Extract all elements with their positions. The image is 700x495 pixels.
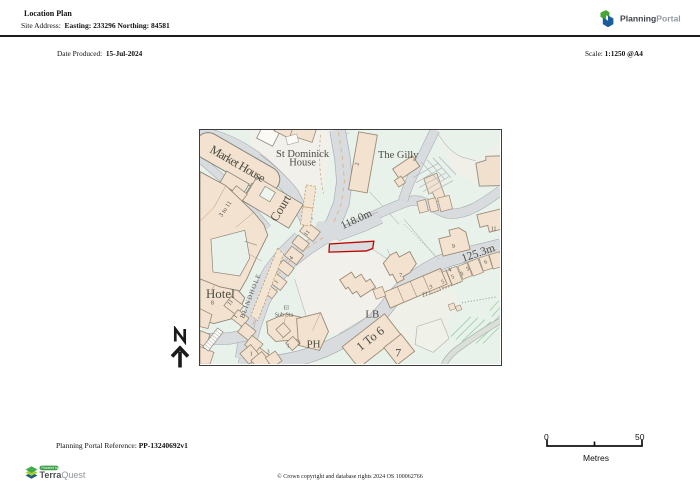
svg-text:1: 1 bbox=[249, 351, 252, 357]
svg-text:PlanningPortal: PlanningPortal bbox=[620, 14, 681, 24]
svg-text:3: 3 bbox=[297, 340, 300, 346]
svg-text:LB: LB bbox=[365, 308, 379, 320]
svg-text:1: 1 bbox=[286, 343, 289, 349]
svg-text:PH: PH bbox=[306, 338, 320, 350]
svg-text:Hotel: Hotel bbox=[206, 285, 235, 300]
svg-text:Sub Sta: Sub Sta bbox=[274, 312, 293, 318]
svg-text:9: 9 bbox=[452, 244, 455, 250]
svg-text:The Gilly: The Gilly bbox=[378, 149, 419, 160]
svg-text:House: House bbox=[289, 157, 316, 168]
svg-text:7: 7 bbox=[399, 273, 402, 279]
svg-text:3: 3 bbox=[266, 349, 269, 355]
svg-text:Metres: Metres bbox=[583, 453, 609, 463]
svg-text:11: 11 bbox=[490, 226, 496, 232]
svg-text:50: 50 bbox=[635, 432, 645, 442]
svg-text:8: 8 bbox=[211, 300, 214, 306]
svg-text:El: El bbox=[283, 305, 289, 311]
svg-text:7: 7 bbox=[395, 345, 401, 359]
